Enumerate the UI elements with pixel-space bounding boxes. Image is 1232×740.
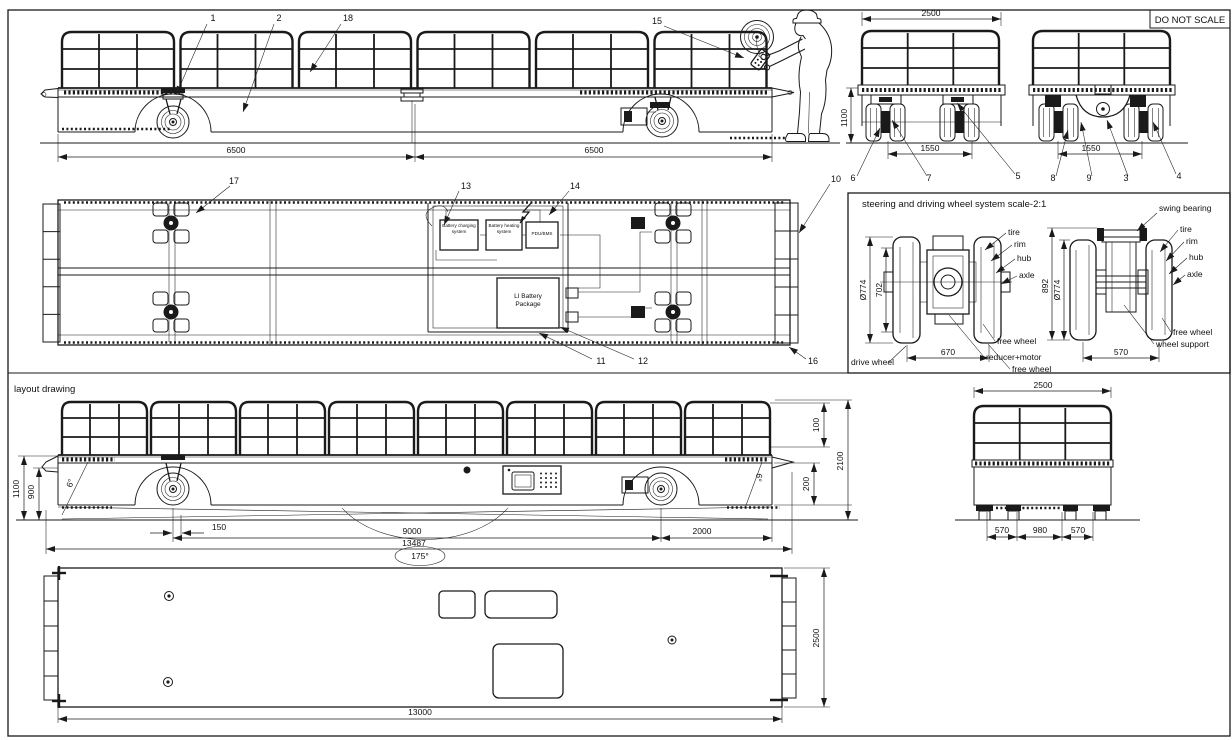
dim-9000: 9000: [403, 526, 422, 536]
dim-1550-rear: 1550: [1082, 143, 1101, 153]
callout-11: 11: [596, 356, 605, 366]
callout-4: 4: [1176, 171, 1181, 181]
dim-200: 200: [801, 477, 811, 491]
callout-17: 17: [229, 176, 239, 186]
label-axle-swing: axle: [1187, 269, 1203, 279]
dim-570-left: 570: [995, 525, 1009, 535]
label-rim-drive: rim: [1014, 239, 1026, 249]
angle-175: 175°: [411, 551, 429, 561]
dim-702: 702: [874, 283, 884, 297]
dim-6500-rear: 6500: [585, 145, 604, 155]
dim-570-right: 570: [1071, 525, 1085, 535]
dim-6500-front: 6500: [227, 145, 246, 155]
callout-14: 14: [570, 181, 580, 191]
dim-150: 150: [212, 522, 226, 532]
callout-18: 18: [343, 13, 353, 23]
dim-2500-underframe: 2500: [811, 628, 821, 647]
label-hub-swing: hub: [1189, 252, 1203, 262]
callout-3: 3: [1123, 173, 1128, 183]
callout-15: 15: [652, 16, 662, 26]
battery-heating-label: Battery heating system: [487, 223, 521, 249]
battery-charging-label: Battery charging system: [441, 223, 477, 249]
callout-5: 5: [1015, 171, 1020, 181]
dim-2000: 2000: [693, 526, 712, 536]
callout-1: 1: [210, 13, 215, 23]
dim-dia-774-drive: Ø774: [858, 279, 868, 300]
dim-dia-774-swing: Ø774: [1052, 279, 1062, 300]
callout-7: 7: [926, 173, 931, 183]
label-tire-drive: tire: [1008, 227, 1020, 237]
label-tire-swing: tire: [1180, 224, 1192, 234]
label-free-wheel-swing: free wheel: [1173, 327, 1212, 337]
dim-2500-top: 2500: [922, 8, 941, 18]
callout-13: 13: [461, 181, 471, 191]
wheel-detail-title: steering and driving wheel system scale-…: [862, 199, 1046, 210]
drawing-sheet: DO NOT SCALE: [0, 0, 1232, 740]
angle-6-rear: 6°: [753, 473, 764, 483]
label-free-wheel-lower: free wheel: [1012, 364, 1051, 374]
dim-1100-end: 1100: [839, 109, 849, 128]
drawing-canvas: DO NOT SCALE: [0, 0, 1232, 740]
callout-2: 2: [276, 13, 281, 23]
dim-980: 980: [1033, 525, 1047, 535]
layout-drawing-title: layout drawing: [14, 384, 75, 395]
callout-10: 10: [831, 174, 841, 184]
dim-570-detail: 570: [1114, 347, 1128, 357]
dim-13000: 13000: [408, 707, 432, 717]
label-reducer-motor: reducer+motor: [986, 352, 1042, 362]
dim-1550-front: 1550: [921, 143, 940, 153]
li-battery-package-label: LI Battery Package: [503, 293, 553, 315]
dim-2500-bottom: 2500: [1034, 380, 1053, 390]
dim-1100-layout: 1100: [11, 480, 21, 499]
callout-8: 8: [1050, 173, 1055, 183]
dim-2100: 2100: [835, 451, 845, 470]
callout-6: 6: [850, 173, 855, 183]
dim-100: 100: [811, 418, 821, 432]
callout-12: 12: [638, 356, 648, 366]
do-not-scale-note: DO NOT SCALE: [1155, 15, 1226, 26]
dim-670: 670: [941, 347, 955, 357]
callout-16: 16: [808, 356, 818, 366]
label-axle-drive: axle: [1019, 270, 1035, 280]
label-wheel-support: wheel support: [1155, 339, 1210, 349]
pdu-bms-label: PDU/BMS: [527, 231, 557, 241]
label-rim-swing: rim: [1186, 236, 1198, 246]
label-free-wheel-upper: free wheel: [997, 336, 1036, 346]
label-drive-wheel: drive wheel: [851, 357, 894, 367]
label-hub-drive: hub: [1017, 253, 1031, 263]
callout-9: 9: [1086, 173, 1091, 183]
label-swing-bearing: swing bearing: [1159, 203, 1212, 213]
dim-892: 892: [1040, 279, 1050, 293]
dim-900: 900: [26, 485, 36, 499]
